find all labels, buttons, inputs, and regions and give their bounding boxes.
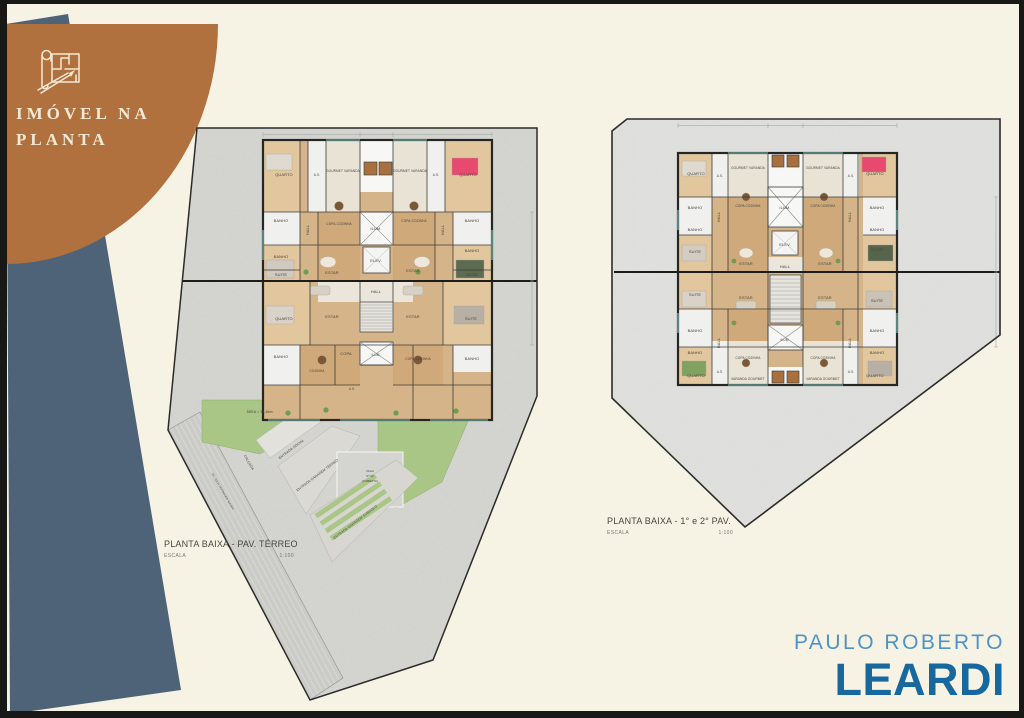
- blueprint-plan-icon: [32, 42, 84, 94]
- plan-title: PLANTA BAIXA - PAV. TÉRREO: [164, 539, 294, 549]
- plan-title: PLANTA BAIXA - 1° e 2° PAV.: [607, 516, 733, 526]
- leardi-logo: PAULO ROBERTO LEARDI: [794, 631, 1005, 702]
- room-label: QUARTO: [866, 373, 884, 378]
- room-label: QUARTO: [275, 316, 293, 321]
- site-label-vaga: (COBERTA): [362, 479, 378, 483]
- floor-plan-ground: QUARTO A.S. GOURMET VARANDA GOURMET VARA…: [160, 110, 540, 710]
- stairs: [770, 275, 801, 323]
- room-label: SUITE: [689, 292, 702, 297]
- room-label: BANHO: [688, 328, 703, 333]
- room-label: HALL: [716, 211, 721, 222]
- room-label: COPA-COZINHA: [405, 357, 431, 361]
- room-label: COPA COZINHA: [810, 356, 836, 360]
- room-label: COPA: [340, 351, 352, 356]
- room-label: BANHO: [465, 218, 480, 223]
- room-label: SUITE: [871, 298, 884, 303]
- room-label: BANHO: [274, 254, 289, 259]
- room-label: SUITE: [465, 316, 478, 321]
- room-label: COZINHA: [309, 369, 325, 373]
- room-label: A.S.: [349, 387, 355, 391]
- room-label: HALL: [780, 264, 791, 269]
- room-label: HALL: [847, 337, 852, 348]
- room-label: A.S.: [717, 370, 723, 374]
- room-label: ILUM.: [780, 338, 789, 342]
- badge-line-2: PLANTA: [16, 127, 151, 153]
- room-label: SUITE: [871, 247, 884, 252]
- room-label: GOURMET VARANDA: [806, 166, 841, 170]
- room-label: GOURMET VARANDA: [326, 169, 361, 173]
- site-label-vaga: VAGA: [366, 469, 374, 473]
- room-label: HALL: [371, 289, 382, 294]
- room-label: ESTAR: [325, 270, 339, 275]
- room-label: HALL: [440, 224, 445, 235]
- room-label: SUITE: [275, 272, 288, 277]
- room-label: GOURMET VARANDA: [393, 169, 428, 173]
- scale-value: 1:100: [718, 530, 733, 536]
- room-label: ILUM.: [370, 226, 381, 231]
- room-label: VARANDA GOURMET: [731, 377, 765, 381]
- room-label: ESTAR: [406, 268, 420, 273]
- room-label: COPA COZINHA: [735, 204, 761, 208]
- room-label: ELEV.: [779, 242, 790, 247]
- site-label-vaga: Nº 02: [366, 474, 374, 478]
- room-label: A.S.: [717, 174, 723, 178]
- room-label: BANHO: [465, 356, 480, 361]
- room-label: BANHO: [688, 205, 703, 210]
- floor-plan-typical: QUARTO A.S. GOURMET VARANDA GOURMET VARA…: [600, 105, 1024, 545]
- room-label: ILUM.: [371, 353, 380, 357]
- room-label: SUITE: [689, 249, 702, 254]
- room-label: BANHO: [274, 218, 289, 223]
- room-label: BANHO: [274, 354, 289, 359]
- room-label: COPA COZINHA: [810, 204, 836, 208]
- room-label: BANHO: [688, 350, 703, 355]
- room-label: ESTAR: [818, 261, 832, 266]
- marketing-sheet: IMÓVEL NA PLANTA: [0, 0, 1024, 718]
- room-label: BANHO: [870, 350, 885, 355]
- room-label: ILUM.: [779, 205, 790, 210]
- room-label: QUARTO: [275, 172, 293, 177]
- stairs: [360, 302, 393, 332]
- room-label: ESTAR: [739, 261, 753, 266]
- room-label: QUARTO: [687, 171, 705, 176]
- room-label: QUARTO: [687, 373, 705, 378]
- room-label: ELEV.: [370, 258, 381, 263]
- scale-value: 1:100: [279, 553, 294, 559]
- room-label: VARANDA GOURMET: [806, 377, 840, 381]
- room-label: A.S.: [314, 173, 320, 177]
- room-label: BANHO: [870, 205, 885, 210]
- room-label: BANHO: [465, 248, 480, 253]
- scale-label: ESCALA: [164, 553, 186, 559]
- room-label: COPA-COZINHA: [326, 222, 352, 226]
- room-label: QUARTO: [459, 172, 477, 177]
- site-label-area: ÁREA = 23,46m²: [247, 410, 275, 414]
- room-label: COPA COZINHA: [735, 356, 761, 360]
- room-label: ESTAR: [739, 295, 753, 300]
- room-label: ESTAR: [325, 314, 339, 319]
- room-label: A.S.: [433, 173, 439, 177]
- badge-line-1: IMÓVEL NA: [16, 101, 151, 127]
- room-label: QUARTO: [866, 171, 884, 176]
- room-label: BANHO: [870, 328, 885, 333]
- caption-typical-floor: PLANTA BAIXA - 1° e 2° PAV. ESCALA 1:100: [607, 516, 733, 536]
- room-label: HALL: [716, 337, 721, 348]
- scale-label: ESCALA: [607, 530, 629, 536]
- room-label: BANHO: [688, 227, 703, 232]
- room-label: A.S.: [848, 370, 854, 374]
- caption-ground-floor: PLANTA BAIXA - PAV. TÉRREO ESCALA 1:100: [164, 539, 294, 559]
- room-label: HALL: [305, 224, 310, 235]
- room-label: A.S.: [848, 174, 854, 178]
- room-label: HALL: [847, 211, 852, 222]
- logo-line-1: PAULO ROBERTO: [794, 631, 1005, 655]
- logo-line-2: LEARDI: [794, 657, 1005, 702]
- badge-imovel-na-planta: IMÓVEL NA PLANTA: [16, 101, 151, 153]
- room-label: ESTAR: [818, 295, 832, 300]
- room-label: BANHO: [870, 227, 885, 232]
- room-label: GOURMET VARANDA: [731, 166, 766, 170]
- room-label: ESTAR: [406, 314, 420, 319]
- room-label: SUITE: [466, 272, 479, 277]
- room-label: COPA-COZINHA: [401, 219, 427, 223]
